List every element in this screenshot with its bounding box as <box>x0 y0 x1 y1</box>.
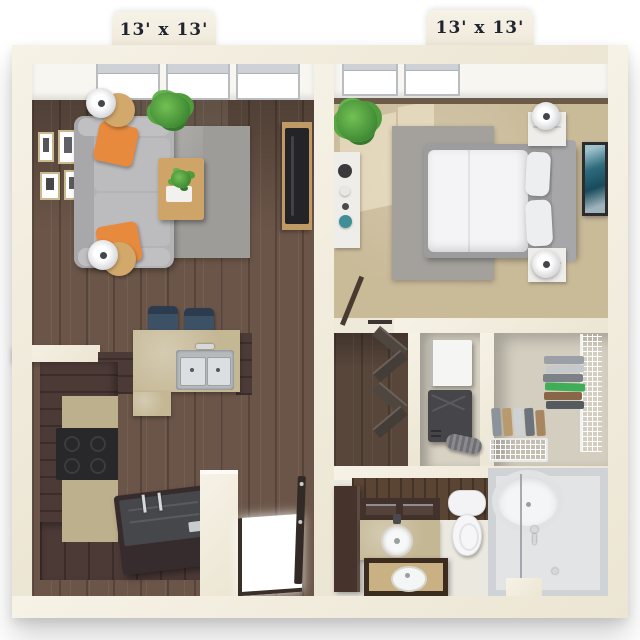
kitchen-sink <box>176 350 234 390</box>
counter-return <box>133 392 171 416</box>
throw-pillow <box>92 120 139 167</box>
entry-flank-wall <box>200 470 238 598</box>
headboard <box>552 140 576 262</box>
bathroom-tall-cabinet <box>334 486 360 592</box>
bathroom-wall-jog <box>506 578 542 598</box>
counter-segment <box>62 396 118 428</box>
window <box>236 58 300 100</box>
bed-duvet <box>428 150 528 252</box>
tv <box>285 128 309 224</box>
toilet-bowl <box>452 514 482 556</box>
front-door-opening <box>238 514 302 596</box>
shower-handle <box>552 568 558 574</box>
hall-utility-wall <box>408 333 420 466</box>
folded-clothes <box>546 364 584 373</box>
counter-segment <box>62 480 118 542</box>
decor-vase <box>339 215 352 228</box>
floorplan-canvas: 13' x 13' 13' x 13' <box>0 0 640 640</box>
folded-clothes <box>543 374 583 382</box>
bedroom-base-trim <box>334 98 608 104</box>
faucet <box>196 344 214 349</box>
tabletop-plant <box>171 170 191 188</box>
shower-arm <box>533 534 536 544</box>
picture-frame <box>40 172 60 200</box>
bedroom-dimension-label: 13' x 13' <box>426 10 534 46</box>
table-lamp <box>532 250 560 278</box>
toilet-tank <box>448 490 486 516</box>
dimension-tab-right: 13' x 13' <box>426 10 534 50</box>
folded-clothes <box>545 382 585 391</box>
shower-glass-panel <box>520 474 522 592</box>
living-room-dimension-label: 13' x 13' <box>112 12 216 48</box>
folded-clothes <box>535 410 546 437</box>
picture-frame <box>38 132 54 162</box>
houseplant <box>150 92 190 128</box>
folded-clothes <box>524 408 535 437</box>
folded-clothes <box>546 401 584 409</box>
outer-wall-right <box>608 45 628 618</box>
decor-item <box>342 203 349 210</box>
folded-clothes <box>544 356 584 364</box>
folded-clothes <box>544 392 582 400</box>
vessel-sink <box>381 525 413 557</box>
folded-clothes <box>491 408 502 437</box>
table-lamp <box>532 102 560 130</box>
outer-wall-bottom <box>12 596 628 618</box>
door-threshold <box>368 320 392 324</box>
table-lamp <box>88 240 118 270</box>
shower-head <box>531 526 538 533</box>
vanity-faucet <box>393 514 401 524</box>
folded-clothes <box>513 408 524 437</box>
wall-art <box>582 142 608 216</box>
wire-shelving <box>580 334 602 452</box>
table-lamp <box>86 88 116 118</box>
bed-pillow <box>525 151 551 196</box>
water-heater <box>430 340 472 386</box>
decor-plate <box>338 164 352 178</box>
wire-basket <box>488 438 548 462</box>
houseplant <box>336 100 378 142</box>
coffee-table <box>158 158 204 220</box>
folded-clothes <box>502 408 513 437</box>
mirror <box>364 558 448 596</box>
cooktop <box>56 428 118 480</box>
outer-wall-left <box>12 45 32 618</box>
decor-sphere <box>340 186 350 196</box>
bedroom-south-wall <box>394 318 608 333</box>
center-dividing-wall <box>314 45 334 598</box>
bathtub <box>492 470 564 532</box>
outer-wall-top <box>12 45 628 64</box>
bed-pillow <box>525 199 553 246</box>
